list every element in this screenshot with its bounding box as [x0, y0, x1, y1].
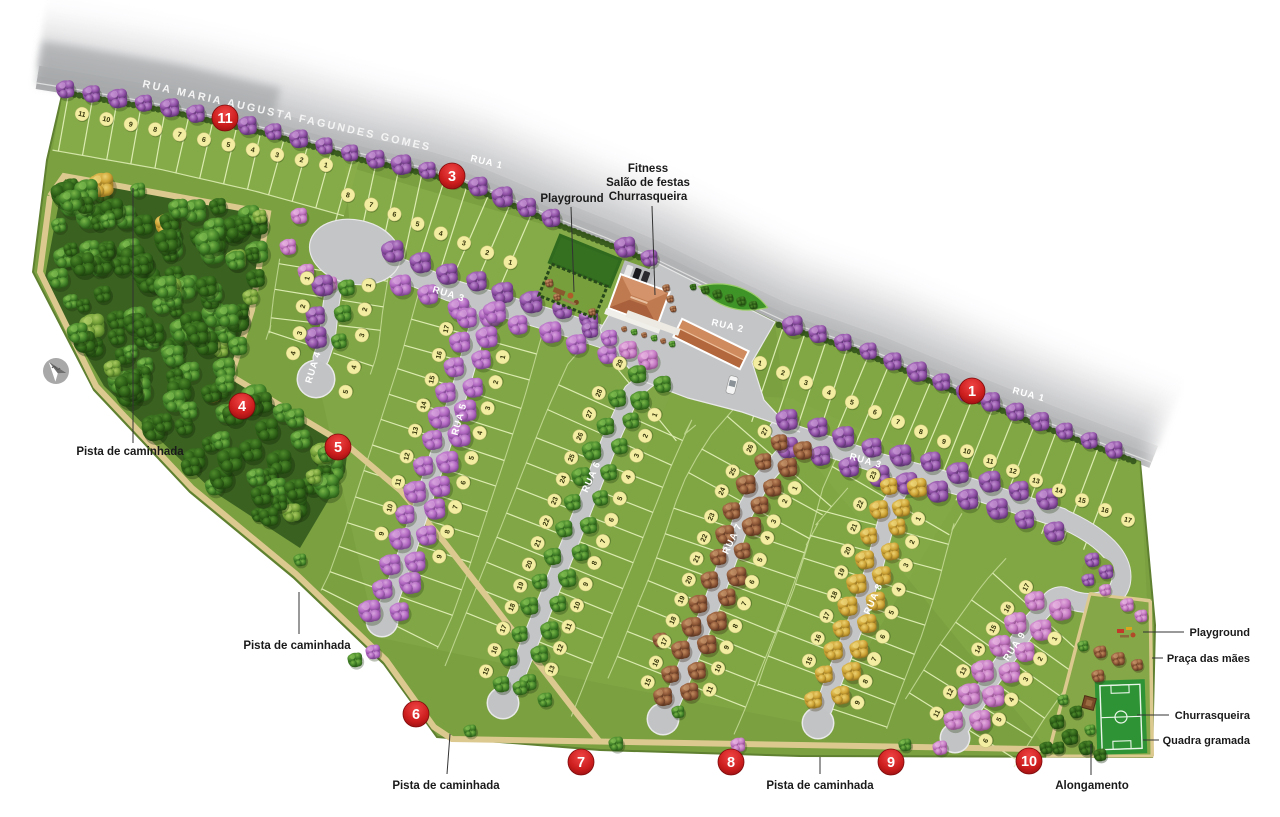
svg-text:7: 7	[577, 755, 585, 771]
svg-text:8: 8	[727, 755, 735, 771]
svg-text:Pista de caminhada: Pista de caminhada	[766, 780, 874, 792]
svg-text:Churrasqueira: Churrasqueira	[1175, 710, 1251, 722]
svg-text:Fitness: Fitness	[628, 163, 668, 175]
svg-text:6: 6	[412, 707, 420, 723]
svg-text:11: 11	[217, 111, 232, 127]
svg-text:Playground: Playground	[1189, 627, 1250, 639]
svg-text:Pista de caminhada: Pista de caminhada	[76, 446, 184, 458]
svg-text:Pista de caminhada: Pista de caminhada	[243, 640, 351, 652]
svg-text:Salão de festas: Salão de festas	[606, 177, 690, 189]
svg-text:3: 3	[448, 169, 456, 185]
svg-text:Playground: Playground	[540, 193, 603, 205]
svg-text:4: 4	[238, 399, 246, 415]
svg-text:5: 5	[334, 440, 342, 456]
svg-text:Quadra gramada: Quadra gramada	[1163, 735, 1251, 747]
svg-text:Alongamento: Alongamento	[1055, 780, 1128, 792]
svg-text:1: 1	[968, 384, 976, 400]
svg-text:9: 9	[887, 755, 895, 771]
svg-text:Churrasqueira: Churrasqueira	[609, 191, 688, 203]
svg-text:Praça das mães: Praça das mães	[1167, 653, 1250, 665]
svg-text:10: 10	[1021, 754, 1037, 770]
svg-text:Pista de caminhada: Pista de caminhada	[392, 780, 500, 792]
